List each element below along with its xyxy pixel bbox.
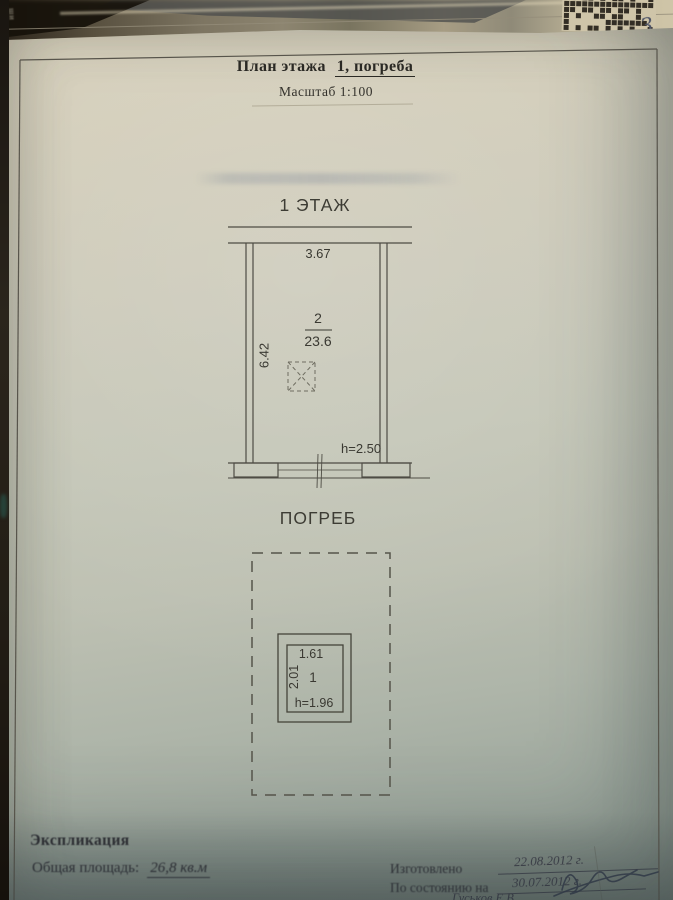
cellar-hatch-symbol: [288, 362, 315, 391]
title-prefix: План этажа: [237, 58, 326, 75]
show-through-text-smudge: [195, 173, 460, 184]
floor1-room-number: 2: [288, 310, 348, 326]
floor1-side-dimension: 6.42: [257, 340, 272, 372]
floor1-top-dimension: 3.67: [288, 246, 348, 261]
cellar-room-number: 1: [288, 670, 338, 685]
title-object: 1, погреба: [335, 58, 415, 77]
cellar-top-dimension: 1.61: [286, 647, 336, 661]
scale-label: Масштаб 1:100: [186, 84, 466, 100]
floor1-heading: 1 ЭТАЖ: [215, 195, 415, 216]
plan-drawing: [0, 22, 673, 900]
photo-background-left: [0, 0, 9, 900]
floor-plan-document-page: План этажа 1, погреба Масштаб 1:100 1 ЭТ…: [0, 22, 673, 900]
cellar-ceiling-height: h=1.96: [286, 696, 342, 710]
floor1-ceiling-height: h=2.50: [341, 441, 381, 456]
document-title: План этажа 1, погреба: [136, 58, 516, 76]
clip-blemish: [0, 494, 7, 518]
photo-bottom-shadow: [0, 812, 673, 900]
floor1-room-area: 23.6: [288, 333, 348, 349]
cellar-heading: ПОГРЕБ: [218, 508, 418, 529]
